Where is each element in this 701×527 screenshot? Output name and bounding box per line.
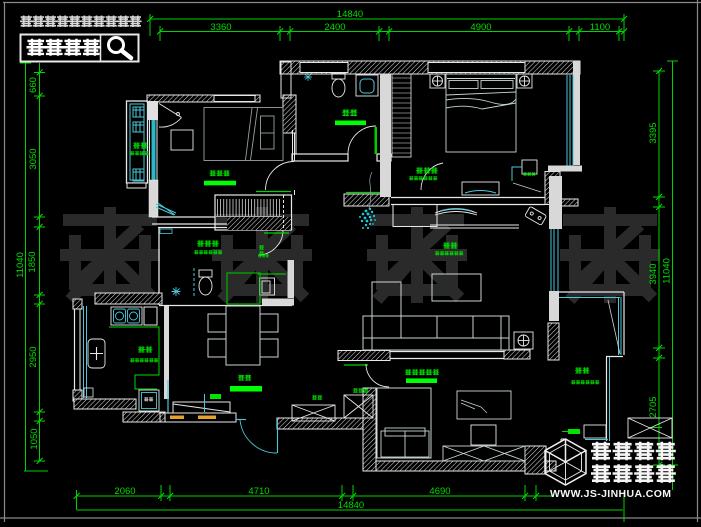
svg-text:11040: 11040 — [15, 252, 26, 278]
svg-text:3395: 3395 — [648, 122, 659, 143]
svg-text:WWW.JS-JINHUA.COM: WWW.JS-JINHUA.COM — [550, 488, 671, 500]
svg-text:2400: 2400 — [324, 22, 345, 33]
svg-text:1100: 1100 — [590, 22, 610, 33]
svg-text:1050: 1050 — [29, 428, 40, 449]
svg-text:2950: 2950 — [28, 346, 39, 367]
svg-text:2705: 2705 — [648, 396, 659, 417]
svg-text:11040: 11040 — [662, 258, 673, 284]
svg-text:4900: 4900 — [470, 22, 491, 33]
svg-text:4690: 4690 — [429, 486, 450, 497]
svg-text:3360: 3360 — [210, 22, 231, 33]
svg-text:1850: 1850 — [27, 251, 38, 272]
svg-text:660: 660 — [28, 77, 39, 93]
svg-text:14840: 14840 — [338, 500, 364, 511]
svg-text:14840: 14840 — [337, 9, 363, 20]
svg-text:3050: 3050 — [28, 148, 39, 169]
svg-text:4710: 4710 — [248, 486, 269, 497]
svg-text:3940: 3940 — [648, 263, 659, 284]
svg-text:2060: 2060 — [114, 486, 135, 497]
